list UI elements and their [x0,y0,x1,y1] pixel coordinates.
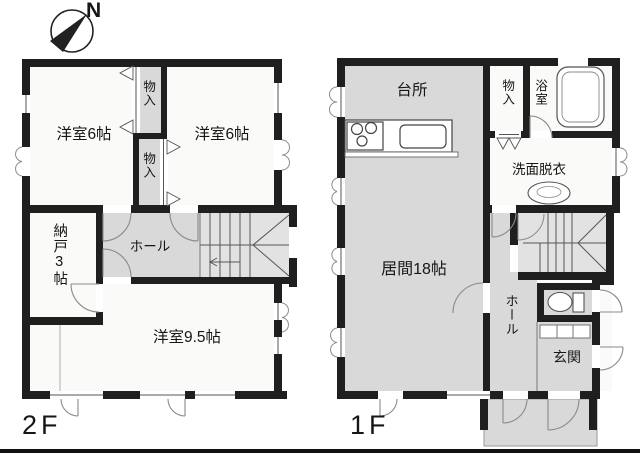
room-label-2f-bedroom-right: 洋室6帖 [176,127,268,143]
room-label-2f-bedroom-large: 洋室9.5帖 [137,330,237,346]
image-bottom-border [0,449,640,453]
room-label-1f-washroom: 洗面脱衣 [503,163,575,177]
room-label-1f-bathroom: 浴室 [533,79,546,106]
floor1-title: 1F [350,411,390,439]
toilet-icon [548,293,584,313]
bathtub-icon [557,67,604,127]
room-label-2f-hall: ホール [124,240,176,254]
kitchen-counter-icon [345,120,458,157]
room-label-1f-hall: ホール [504,294,518,336]
shoe-cabinet-icon [540,325,590,338]
room-label-2f-bedroom-left: 洋室6帖 [40,127,128,143]
room-label-2f-closet-upper: 物入 [141,80,154,107]
room-label-1f-closet: 物入 [500,79,513,106]
floor2-title: 2F [22,411,62,439]
room-label-1f-kitchen: 台所 [386,83,438,99]
room-label-2f-storage: 納戸3帖 [51,223,66,287]
compass-north-label: N [86,0,101,22]
room-label-1f-entrance: 玄関 [547,350,587,365]
room-label-1f-living: 居間18帖 [370,262,458,279]
floor1-plan [330,58,628,446]
washbasin-icon [528,182,570,204]
floor-plan-image: N 洋室6帖 物入 物入 洋室6帖 納戸3帖 ホール 洋室9.5帖 2F 台所 … [0,0,640,453]
floor-plan-drawing [0,0,640,453]
room-label-2f-closet-lower: 物入 [141,152,154,179]
